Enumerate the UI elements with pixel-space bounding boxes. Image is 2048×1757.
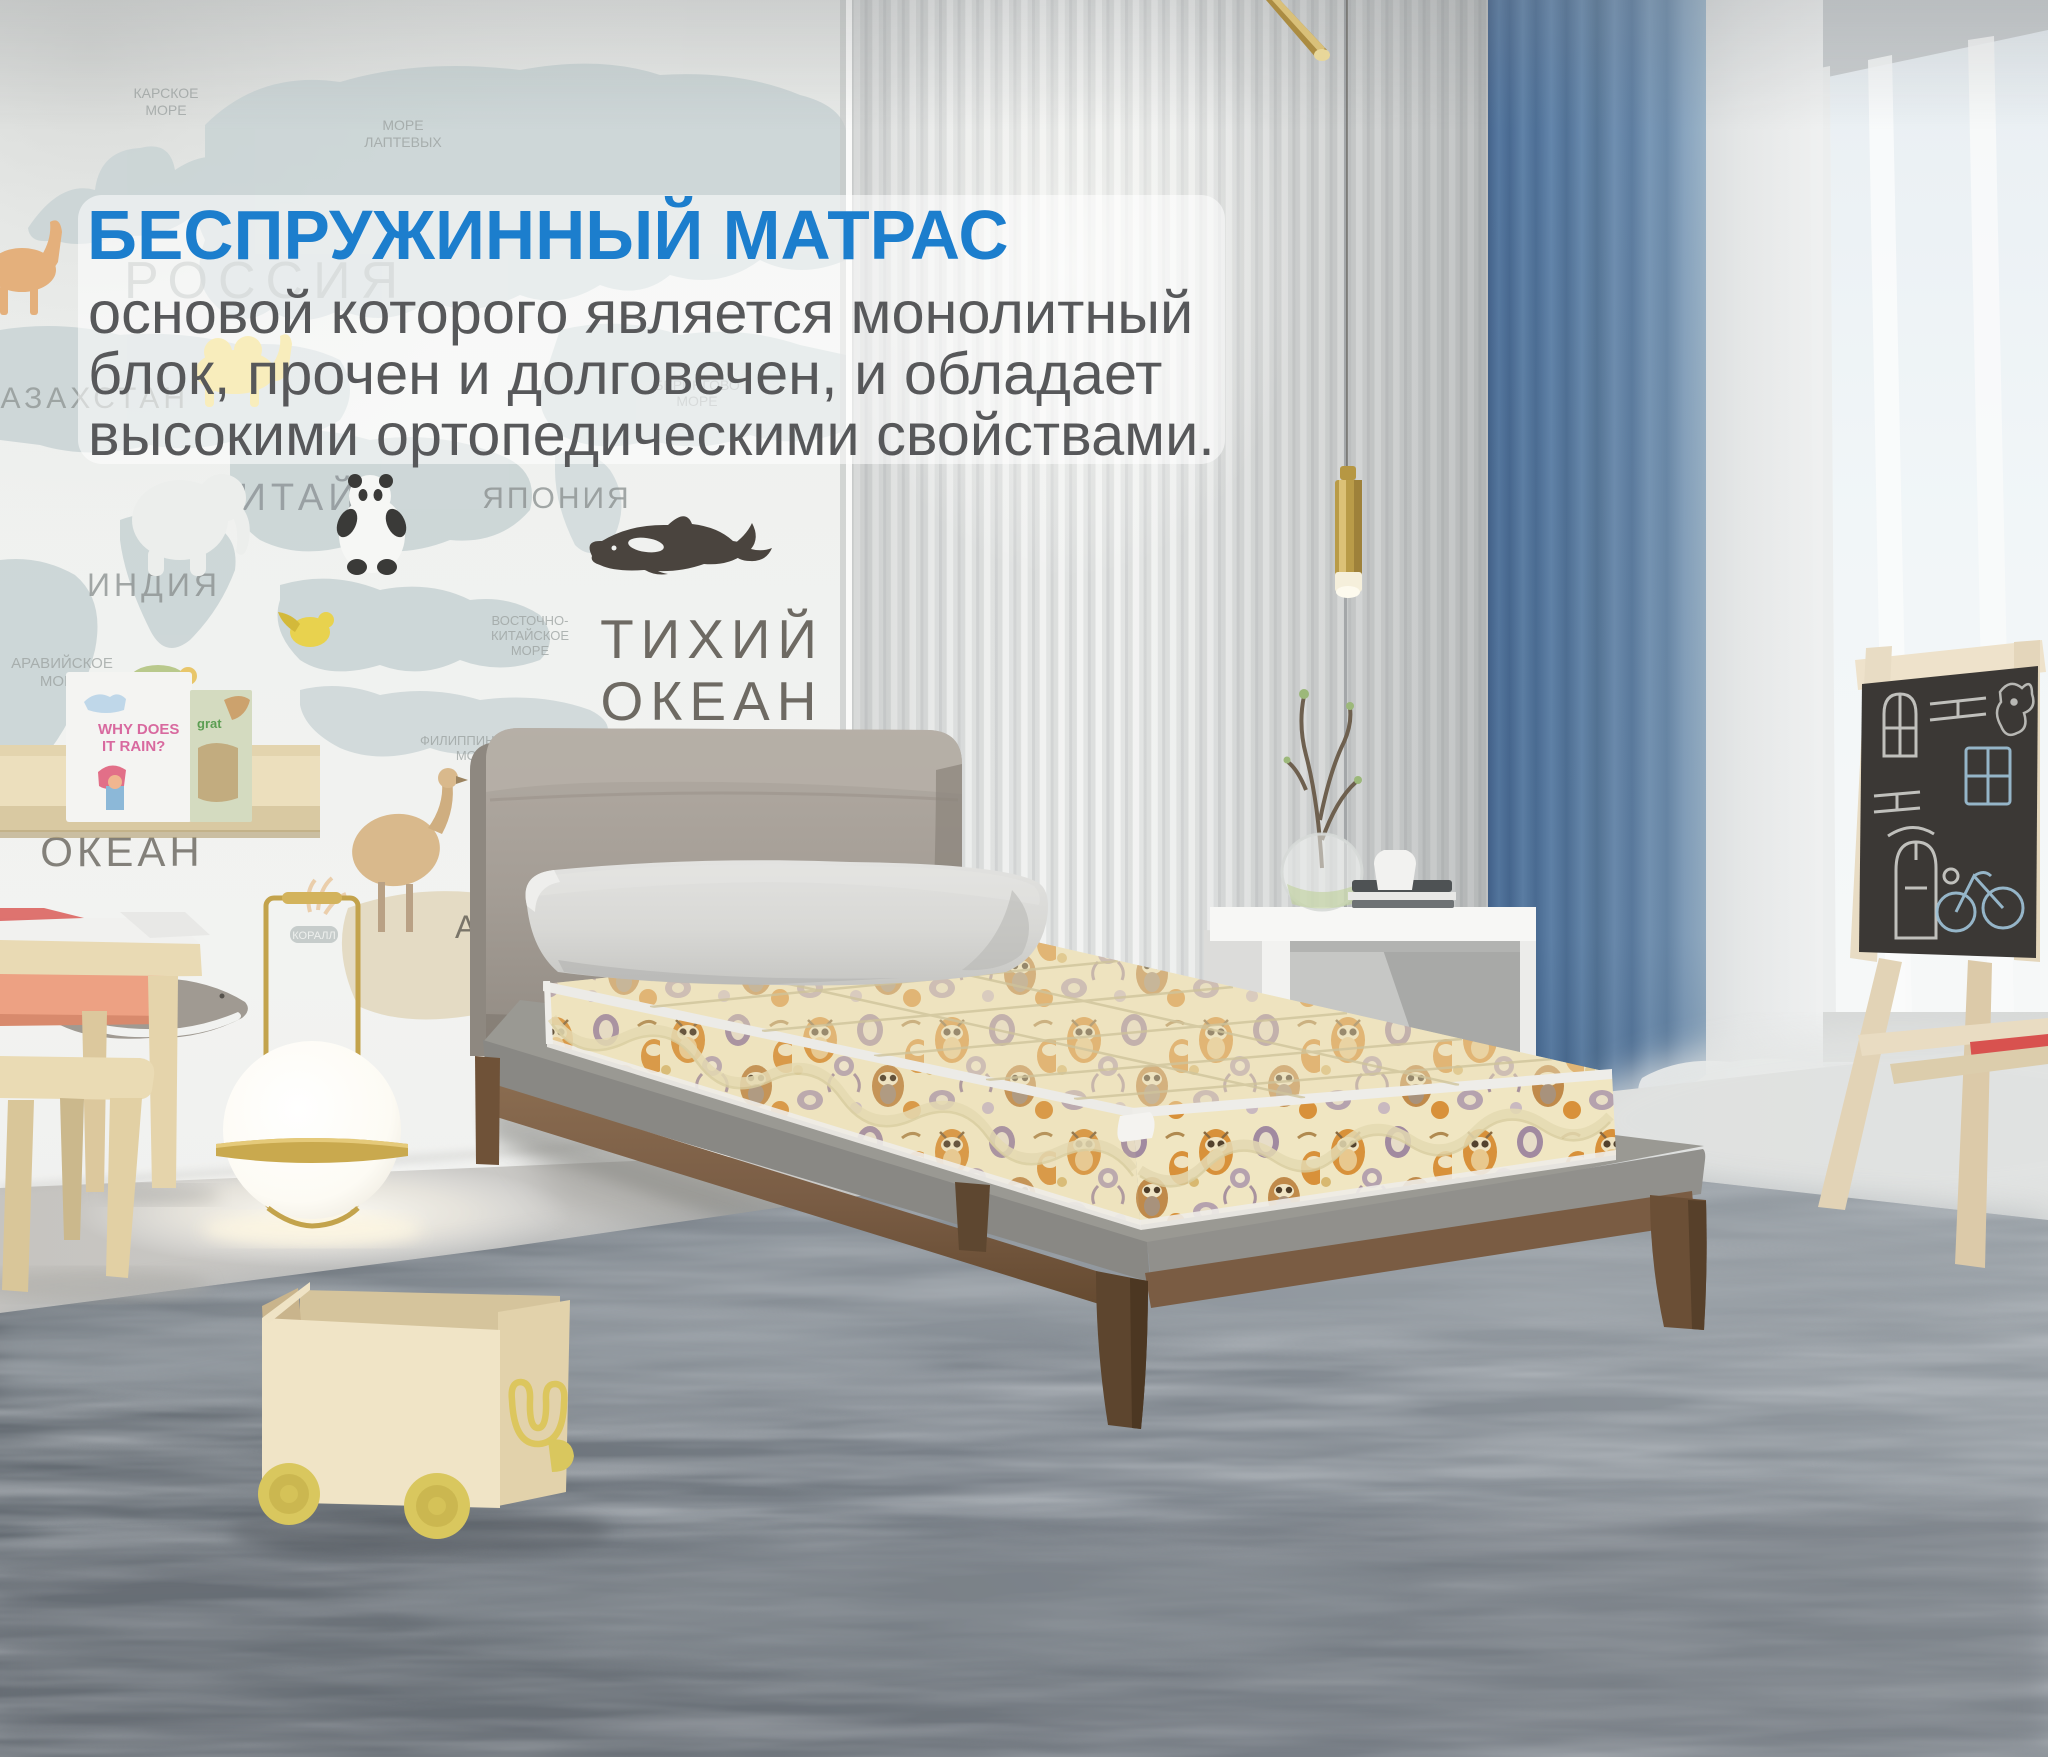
svg-text:IT RAIN?: IT RAIN? (102, 738, 165, 755)
svg-text:WHY DOES: WHY DOES (98, 721, 179, 738)
svg-text:ОКЕАН: ОКЕАН (601, 670, 824, 732)
svg-text:КОРАЛЛ: КОРАЛЛ (292, 930, 335, 942)
svg-text:КИТАЙСКОЕ: КИТАЙСКОЕ (491, 628, 569, 643)
svg-text:ТИХИЙ: ТИХИЙ (600, 607, 824, 670)
svg-text:МОРЕ: МОРЕ (511, 643, 550, 658)
svg-text:ЛАПТЕВЫХ: ЛАПТЕВЫХ (364, 134, 442, 150)
svg-text:ВОСТОЧНО-: ВОСТОЧНО- (492, 613, 569, 628)
svg-text:АРАВИЙСКОЕ: АРАВИЙСКОЕ (11, 654, 113, 672)
svg-text:ЯПОНИЯ: ЯПОНИЯ (482, 482, 631, 515)
svg-text:grat: grat (197, 716, 222, 731)
